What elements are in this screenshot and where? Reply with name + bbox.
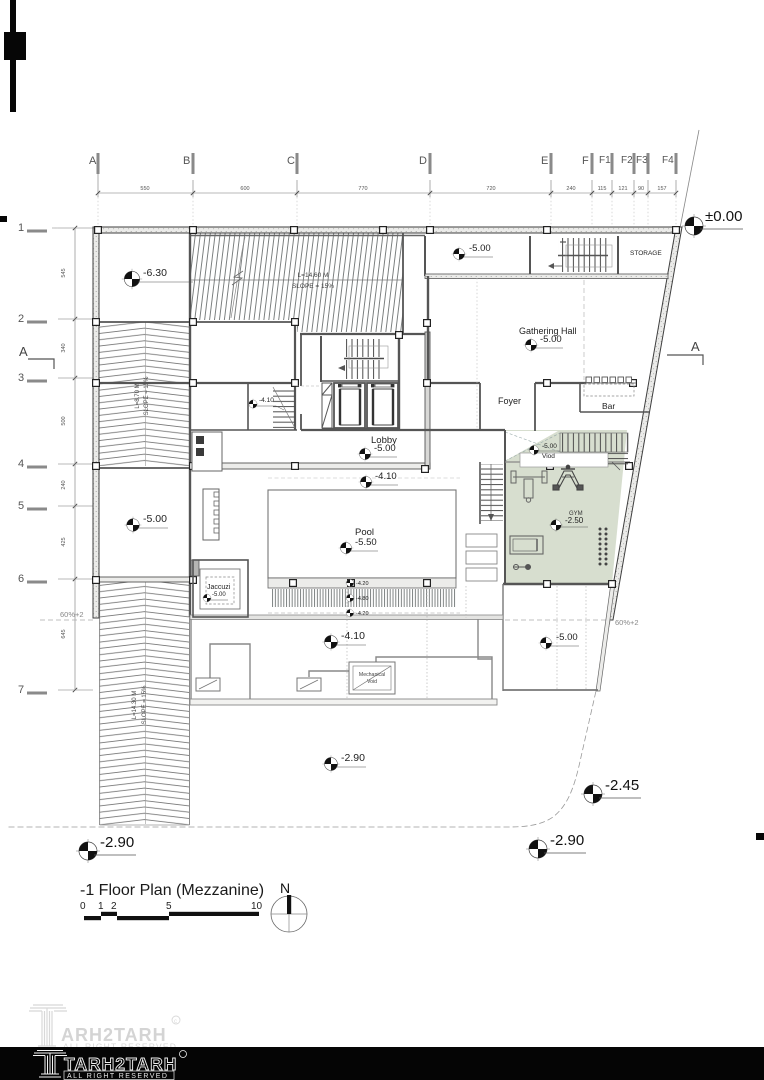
- svg-text:-4.10: -4.10: [259, 397, 274, 404]
- svg-text:C: C: [287, 155, 295, 167]
- svg-text:B: B: [183, 155, 190, 167]
- svg-text:L=14.60 M: L=14.60 M: [298, 272, 329, 279]
- svg-text:90: 90: [638, 186, 644, 192]
- svg-text:A: A: [89, 155, 97, 167]
- svg-text:-5.00: -5.00: [542, 443, 557, 450]
- svg-text:Jaccuzi: Jaccuzi: [207, 584, 231, 591]
- svg-text:425: 425: [61, 537, 67, 546]
- svg-text:60%+2: 60%+2: [60, 610, 84, 619]
- svg-text:Void: Void: [367, 679, 377, 685]
- svg-text:720: 720: [486, 186, 495, 192]
- svg-text:1: 1: [18, 222, 24, 234]
- svg-text:STORAGE: STORAGE: [630, 250, 662, 257]
- svg-text:-4.20: -4.20: [356, 611, 369, 617]
- svg-text:Bar: Bar: [602, 401, 615, 411]
- svg-text:157: 157: [657, 186, 666, 192]
- svg-text:L=14.30 M: L=14.30 M: [132, 691, 138, 720]
- svg-text:600: 600: [240, 186, 249, 192]
- svg-text:-2.90: -2.90: [100, 834, 134, 851]
- svg-text:N: N: [280, 880, 290, 896]
- svg-text:60%+2: 60%+2: [615, 618, 639, 627]
- svg-text:-4.10: -4.10: [375, 471, 397, 482]
- svg-text:F4: F4: [662, 155, 674, 166]
- svg-text:340: 340: [61, 343, 67, 352]
- svg-text:-4.80: -4.80: [356, 596, 369, 602]
- svg-text:-2.45: -2.45: [605, 777, 639, 794]
- svg-text:-2.90: -2.90: [550, 832, 584, 849]
- svg-text:L=8.70 M: L=8.70 M: [135, 383, 141, 408]
- svg-text:F1: F1: [599, 155, 611, 166]
- svg-text:-1 Floor Plan (Mezzanine): -1 Floor Plan (Mezzanine): [80, 882, 264, 899]
- svg-text:Foyer: Foyer: [498, 396, 521, 406]
- svg-text:550: 550: [140, 186, 149, 192]
- svg-text:SLOPE = 15%: SLOPE = 15%: [292, 283, 334, 290]
- svg-text:Viod: Viod: [542, 453, 555, 460]
- svg-text:4: 4: [18, 458, 24, 470]
- svg-text:A: A: [691, 339, 700, 354]
- svg-text:10: 10: [251, 901, 263, 912]
- svg-text:±0.00: ±0.00: [705, 208, 742, 225]
- svg-text:-5.50: -5.50: [355, 537, 377, 548]
- svg-text:c: c: [174, 1019, 177, 1025]
- svg-text:Mechanical: Mechanical: [359, 672, 385, 678]
- svg-text:-5.00: -5.00: [469, 243, 491, 254]
- svg-text:F2: F2: [621, 155, 633, 166]
- svg-text:-5.00: -5.00: [556, 632, 578, 643]
- svg-text:6: 6: [18, 573, 24, 585]
- svg-text:D: D: [419, 155, 427, 167]
- svg-text:-6.30: -6.30: [143, 267, 167, 279]
- svg-text:F: F: [582, 155, 589, 167]
- svg-text:645: 645: [61, 629, 67, 638]
- svg-text:F3: F3: [636, 155, 648, 166]
- svg-text:115: 115: [598, 186, 607, 192]
- svg-text:-5.00: -5.00: [540, 334, 562, 345]
- svg-text:500: 500: [61, 416, 67, 425]
- svg-text:2: 2: [111, 901, 117, 912]
- svg-text:2: 2: [18, 313, 24, 325]
- svg-text:1: 1: [98, 901, 104, 912]
- svg-text:545: 545: [61, 268, 67, 277]
- svg-text:-5.00: -5.00: [374, 443, 396, 454]
- svg-text:-4.20: -4.20: [356, 581, 369, 587]
- svg-text:770: 770: [358, 186, 367, 192]
- svg-text:-2.50: -2.50: [565, 516, 584, 525]
- svg-text:3: 3: [18, 372, 24, 384]
- svg-text:5: 5: [18, 500, 24, 512]
- svg-text:0: 0: [80, 901, 86, 912]
- svg-text:ALL RIGHT RESERVED: ALL RIGHT RESERVED: [67, 1073, 168, 1080]
- svg-text:-4.10: -4.10: [341, 630, 365, 642]
- svg-text:240: 240: [566, 186, 575, 192]
- svg-text:-5.00: -5.00: [143, 513, 167, 525]
- svg-text:A: A: [19, 344, 28, 359]
- svg-text:-2.90: -2.90: [341, 752, 365, 764]
- svg-text:5: 5: [166, 901, 172, 912]
- svg-text:-5.00: -5.00: [212, 592, 226, 598]
- svg-text:240: 240: [61, 480, 67, 489]
- svg-text:SLOPE = 15%: SLOPE = 15%: [142, 685, 148, 725]
- svg-text:E: E: [541, 155, 548, 167]
- svg-text:SLOPE = 15%: SLOPE = 15%: [144, 376, 150, 416]
- svg-text:7: 7: [18, 684, 24, 696]
- svg-text:121: 121: [618, 186, 627, 192]
